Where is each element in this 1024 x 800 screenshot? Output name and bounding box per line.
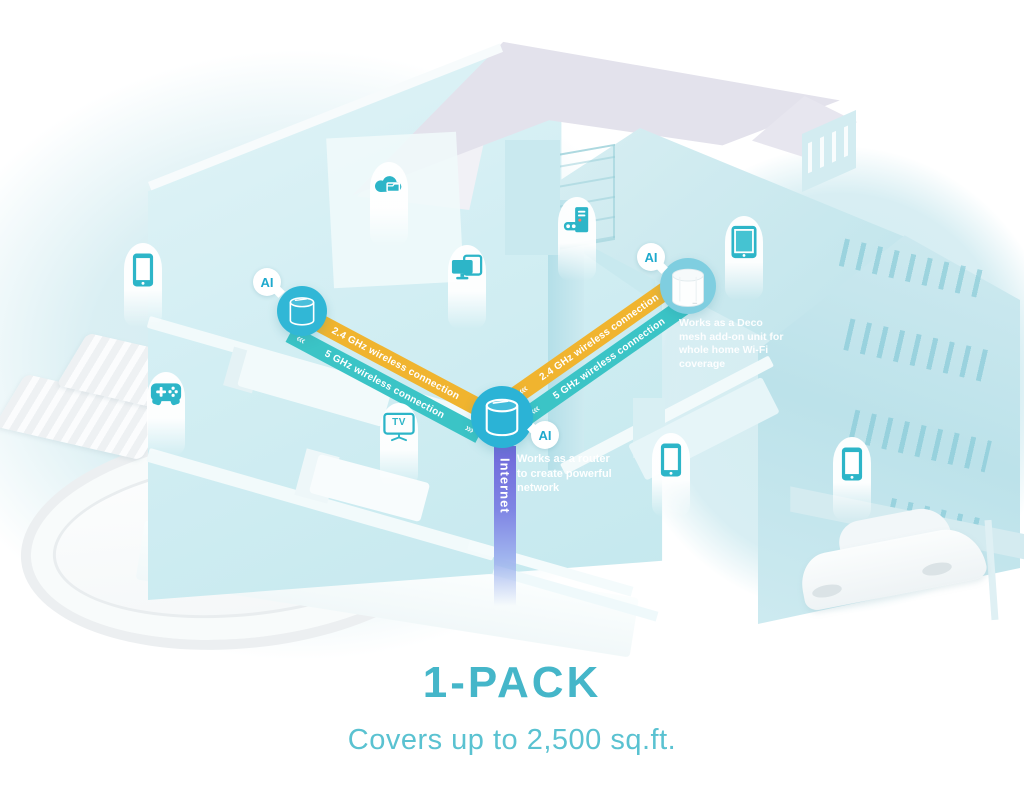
router-caption: Works as a router to create powerful net… <box>517 452 619 496</box>
smartphone-icon <box>132 252 154 288</box>
wardrobe <box>505 140 560 255</box>
deco-cylinder-white-icon <box>668 264 708 308</box>
tv-label: TV <box>380 417 418 428</box>
gamepad-icon <box>150 381 182 407</box>
deco-unit-satellite-left <box>277 286 327 336</box>
smartphone-icon <box>660 442 682 478</box>
deco-cylinder-outline-icon <box>481 395 523 439</box>
ai-label: AI <box>261 275 274 290</box>
device-pin-smartphone <box>124 243 162 327</box>
ai-badge: AI <box>637 243 665 271</box>
addon-caption: Works as a Deco mesh add-on unit for who… <box>679 317 791 372</box>
internet-line: Internet <box>494 446 516 606</box>
device-pin-gamepad <box>147 372 185 456</box>
ai-badge: AI <box>253 268 281 296</box>
device-pin-smartphone <box>652 433 690 517</box>
ai-badge: AI <box>531 421 559 449</box>
pack-title: 1-PACK <box>0 658 1024 708</box>
pc-vr-headset-icon <box>563 206 591 238</box>
deco-cylinder-outline-icon <box>286 294 318 328</box>
tablet-icon <box>731 225 758 259</box>
smartphone-icon <box>841 446 863 482</box>
footer: 1-PACK Covers up to 2,500 sq.ft. <box>0 658 1024 757</box>
device-pin-pc-vr <box>558 197 596 281</box>
desktop-computer-icon <box>451 254 483 281</box>
ai-label: AI <box>645 250 658 265</box>
deco-unit-addon <box>660 258 716 314</box>
device-pin-tv: TV <box>380 403 418 487</box>
deco-unit-router-main <box>471 386 533 448</box>
ai-label: AI <box>539 428 552 443</box>
coverage-subtitle: Covers up to 2,500 sq.ft. <box>0 724 1024 757</box>
device-pin-computer <box>448 245 486 329</box>
internet-label: Internet <box>498 458 513 514</box>
device-pin-smartphone <box>833 437 871 521</box>
device-pin-cloud-storage <box>370 162 408 246</box>
dormer-windows <box>808 125 850 174</box>
deco-coverage-illustration: Internet ‹‹‹ 2.4 GHz wireless connection… <box>0 0 1024 800</box>
device-pin-tablet <box>725 216 763 300</box>
cloud-storage-icon <box>373 171 405 197</box>
